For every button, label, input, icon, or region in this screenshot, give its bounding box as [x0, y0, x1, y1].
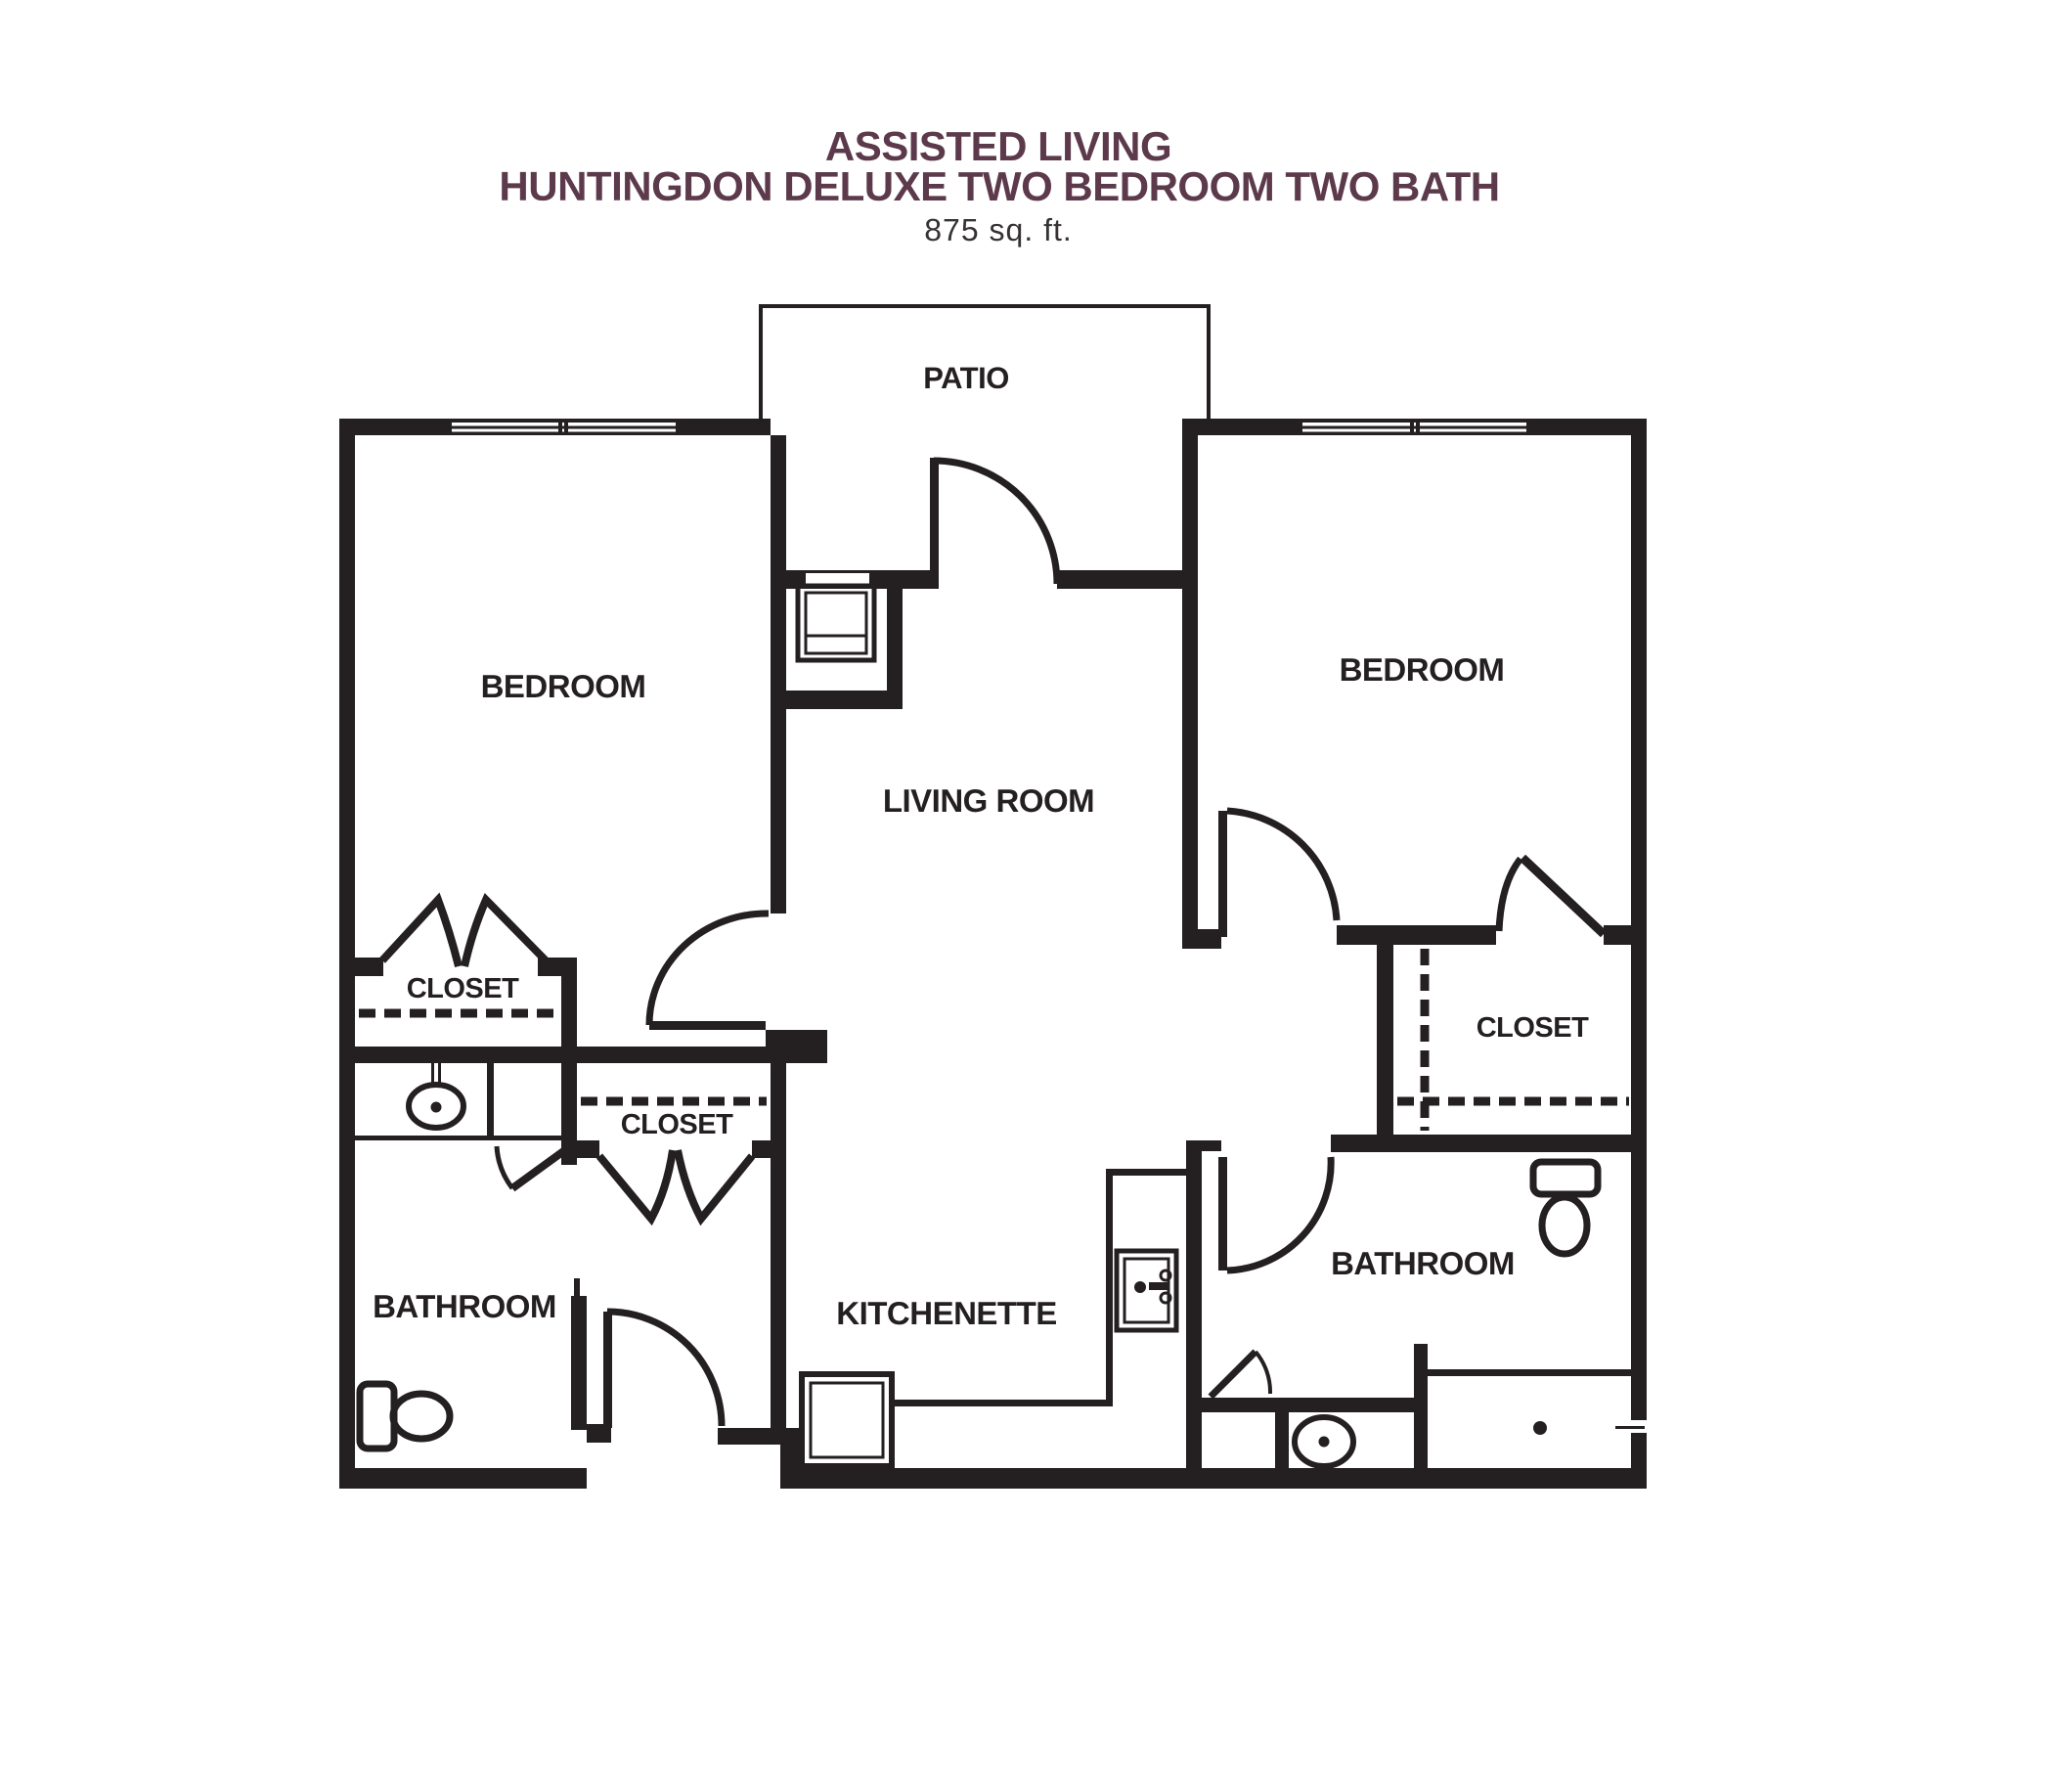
svg-text:CLOSET: CLOSET [407, 973, 519, 1004]
svg-text:BATHROOM: BATHROOM [373, 1288, 556, 1324]
svg-text:KITCHENETTE: KITCHENETTE [836, 1295, 1057, 1331]
svg-text:PATIO: PATIO [923, 361, 1009, 395]
svg-text:BEDROOM: BEDROOM [1340, 651, 1505, 688]
svg-text:BEDROOM: BEDROOM [481, 668, 646, 704]
svg-text:CLOSET: CLOSET [1477, 1012, 1589, 1044]
svg-text:LIVING ROOM: LIVING ROOM [883, 782, 1094, 819]
svg-text:CLOSET: CLOSET [621, 1109, 733, 1140]
svg-text:HUNTINGDON DELUXE TWO BEDROOM: HUNTINGDON DELUXE TWO BEDROOM TWO BATH [499, 163, 1499, 210]
svg-text:875 sq. ft.: 875 sq. ft. [924, 212, 1073, 247]
svg-text:BATHROOM: BATHROOM [1331, 1245, 1515, 1281]
